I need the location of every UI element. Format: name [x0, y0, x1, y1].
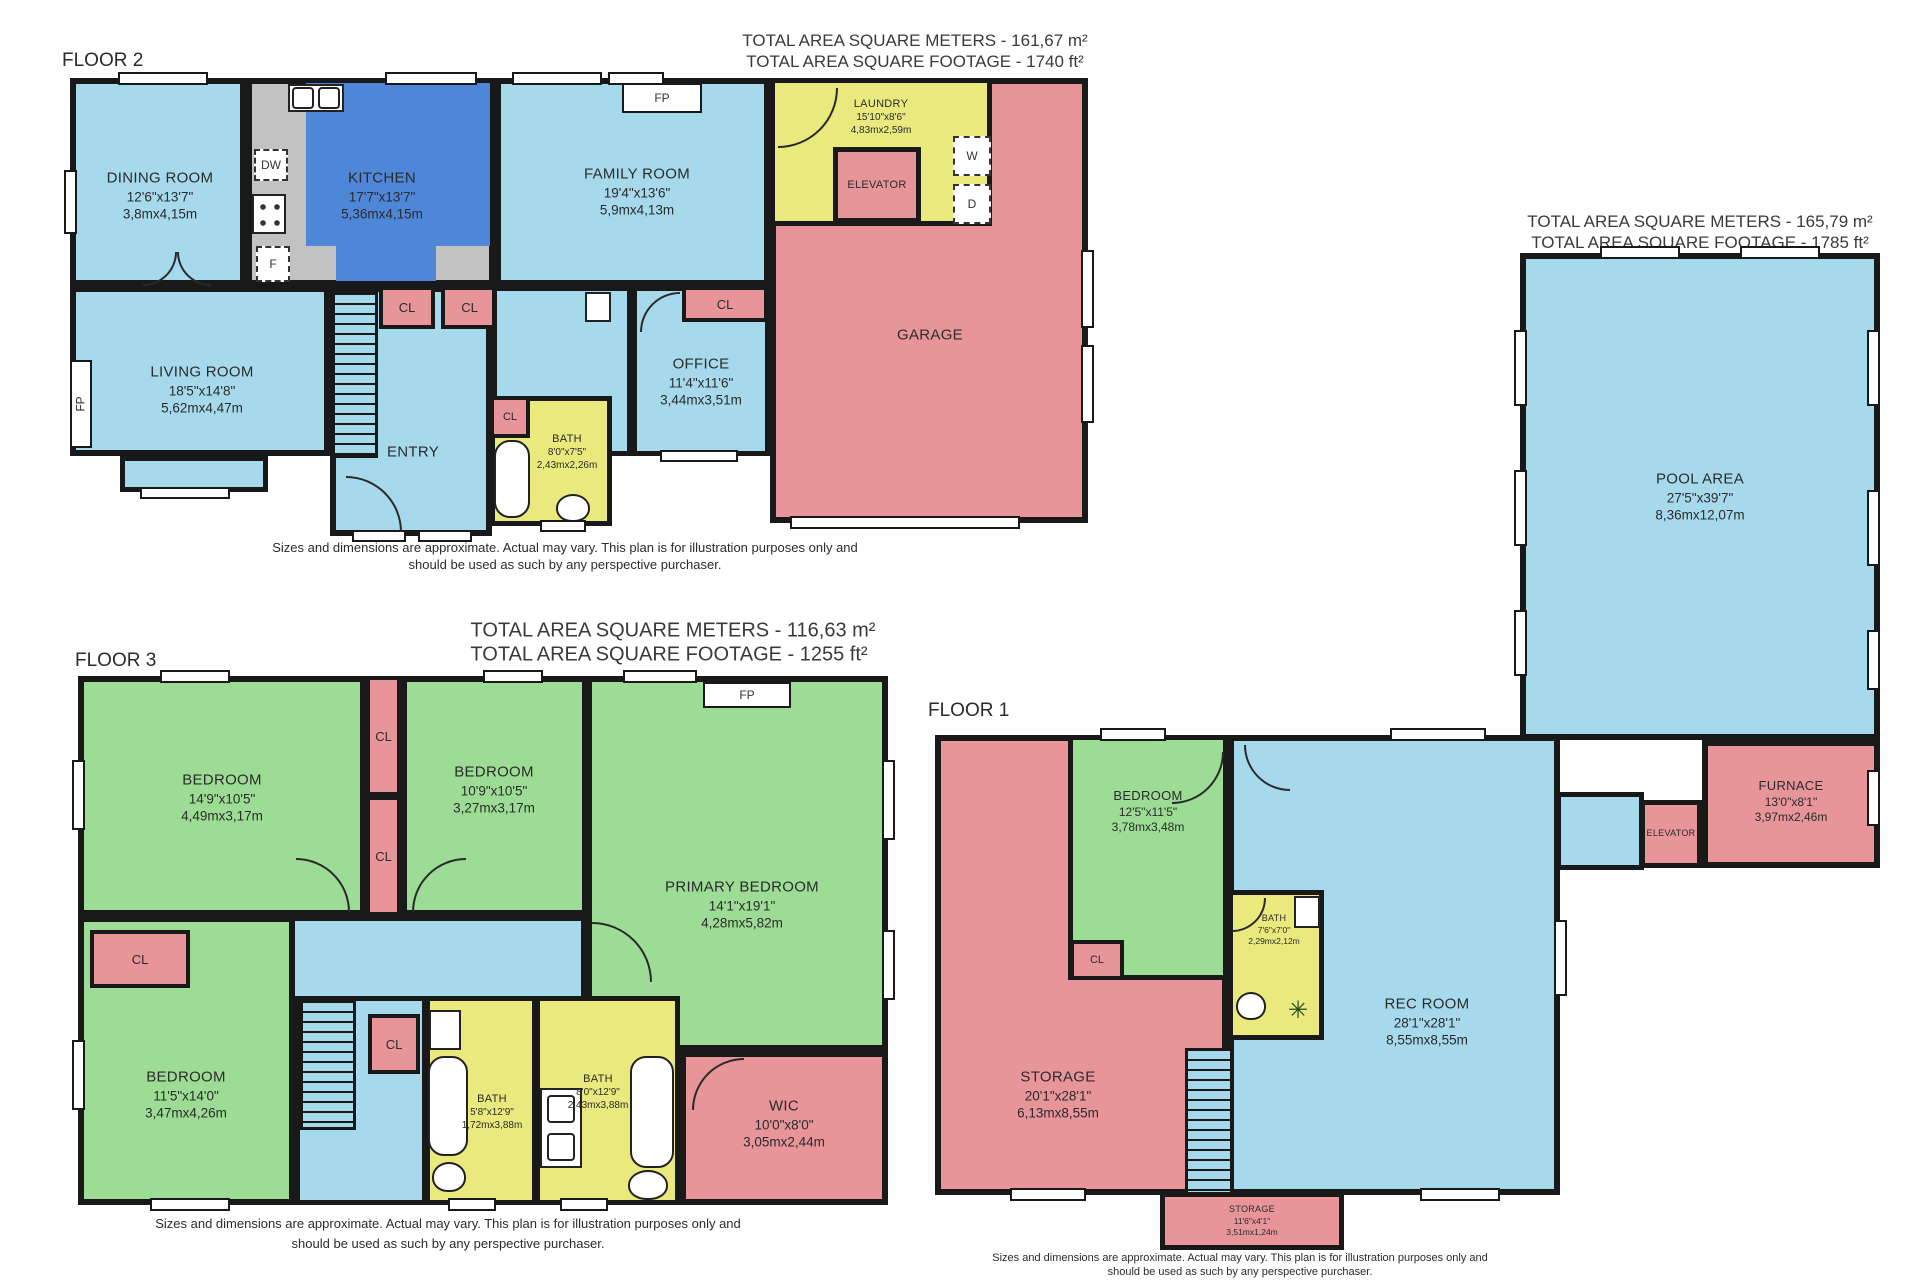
window: [1867, 630, 1880, 690]
floor1-total-meters: TOTAL AREA SQUARE METERS - 165,79 m²: [1527, 212, 1872, 232]
window: [1867, 330, 1880, 406]
garage-door: [790, 516, 1020, 529]
floor1-disclaimer-1: Sizes and dimensions are approximate. Ac…: [992, 1252, 1487, 1264]
window: [1600, 246, 1680, 259]
tub-bath-b-icon: [630, 1056, 674, 1168]
label-bath-a: BATH 5'8"x12'9" 1,72mx3,88m: [462, 1092, 523, 1132]
label-elevator-f1: ELEVATOR: [1647, 828, 1696, 840]
toilet-bath-a-icon: [432, 1162, 466, 1192]
window: [623, 670, 697, 683]
closet-f2-b: CL: [441, 286, 498, 329]
label-dining: DINING ROOM 12'6"x13'7" 3,8mx4,15m: [107, 169, 214, 224]
window: [882, 760, 895, 840]
closet-f2-a: CL: [379, 286, 435, 329]
label-bedroom-a: BEDROOM 14'9"x10'5" 4,49mx3,17m: [181, 771, 263, 826]
floor2-disclaimer-1: Sizes and dimensions are approximate. Ac…: [272, 540, 858, 555]
label-bath-f2: BATH 8'0"x7'5" 2,43mx2,26m: [537, 432, 598, 472]
tub-f2-icon: [494, 440, 530, 518]
closet-f3-left: CL: [90, 930, 190, 988]
stairs-floor1: [1185, 1048, 1233, 1195]
closet-f1: CL: [1070, 940, 1124, 980]
window: [1514, 330, 1527, 406]
window: [1867, 770, 1880, 826]
label-bedroom-f1: BEDROOM 12'5"x11'5" 3,78mx3,48m: [1112, 788, 1185, 836]
label-laundry: LAUNDRY 15'10"x8'6" 4,83mx2,59m: [851, 97, 912, 137]
closet-f2-bath: CL: [490, 396, 530, 438]
window: [1514, 610, 1527, 676]
floor2-disclaimer-2: should be used as such by any perspectiv…: [409, 557, 722, 572]
floor3-total-meters: TOTAL AREA SQUARE METERS - 116,63 m²: [471, 620, 876, 643]
label-furnace: FURNACE 13'0"x8'1" 3,97mx2,46m: [1755, 778, 1828, 826]
window: [560, 1198, 608, 1211]
label-pool-area: POOL AREA 27'5"x39'7" 8,36mx12,07m: [1655, 470, 1744, 525]
label-bath-f1: BATH 7'6"x7'0" 2,29mx2,12m: [1248, 913, 1300, 947]
label-bath-b: BATH 8'0"x12'9" 2,43mx3,88m: [568, 1072, 629, 1112]
closet-f3-mid: CL: [368, 1014, 420, 1074]
fridge-icon: F: [256, 246, 290, 282]
fireplace-family-icon: FP: [622, 83, 702, 113]
label-entry: ENTRY: [387, 442, 439, 462]
dishwasher-icon: DW: [254, 149, 288, 181]
window: [512, 72, 602, 85]
label-primary-bedroom: PRIMARY BEDROOM 14'1"x19'1" 4,28mx5,82m: [665, 878, 819, 933]
label-living: LIVING ROOM 18'5"x14'8" 5,62mx4,47m: [150, 363, 253, 418]
plant-icon: ✳: [1288, 996, 1308, 1025]
floor3-total-footage: TOTAL AREA SQUARE FOOTAGE - 1255 ft²: [470, 644, 867, 667]
fireplace-primary-icon: FP: [703, 682, 791, 708]
closet-f2-office: CL: [682, 286, 768, 322]
label-garage: GARAGE: [897, 325, 963, 345]
window: [1740, 246, 1820, 259]
floor2-total-meters: TOTAL AREA SQUARE METERS - 161,67 m²: [742, 31, 1087, 51]
window: [1390, 728, 1486, 741]
stairs-floor2: [332, 292, 378, 458]
dryer-icon: D: [953, 184, 991, 224]
label-wic: WIC 10'0"x8'0" 3,05mx2,44m: [743, 1097, 825, 1152]
window: [140, 487, 230, 499]
hall-sink-icon: [585, 292, 611, 322]
window: [608, 72, 664, 85]
floor2-total-footage: TOTAL AREA SQUARE FOOTAGE - 1740 ft²: [746, 52, 1084, 72]
window: [160, 670, 230, 683]
window: [540, 520, 586, 532]
window: [150, 1198, 230, 1211]
range-icon: [252, 194, 286, 234]
fireplace-living-icon: FP: [70, 360, 92, 448]
label-office: OFFICE 11'4"x11'6" 3,44mx3,51m: [660, 355, 742, 410]
label-storage-bottom: STORAGE 11'6"x4'1" 3,51mx1,24m: [1226, 1204, 1278, 1238]
floor3-disclaimer-2: should be used as such by any perspectiv…: [292, 1236, 605, 1251]
label-family: FAMILY ROOM 19'4"x13'6" 5,9mx4,13m: [584, 165, 690, 220]
floor3-disclaimer-1: Sizes and dimensions are approximate. Ac…: [155, 1216, 741, 1231]
kitchen-floor-2: [336, 246, 436, 281]
label-elevator-f2: ELEVATOR: [847, 178, 906, 192]
toilet-bath-b-icon: [628, 1170, 668, 1200]
closet-f3-b: CL: [366, 796, 401, 916]
window: [1420, 1188, 1500, 1201]
window: [72, 760, 85, 830]
sink-bath-a-icon: [429, 1010, 461, 1050]
window: [118, 72, 208, 85]
closet-f3-a: CL: [366, 676, 401, 796]
floor2-title: FLOOR 2: [62, 50, 143, 72]
window: [1081, 250, 1094, 328]
window: [882, 930, 895, 1000]
window: [1010, 1188, 1086, 1201]
floor1-disclaimer-2: should be used as such by any perspectiv…: [1108, 1266, 1373, 1278]
window: [1100, 728, 1166, 741]
washer-icon: W: [953, 136, 991, 176]
window: [72, 1040, 85, 1110]
window: [448, 1198, 496, 1211]
kitchen-sink-icon: [288, 84, 344, 112]
toilet-f1-icon: [1236, 992, 1266, 1020]
window: [483, 670, 543, 683]
window: [64, 170, 77, 234]
toilet-f2-icon: [556, 494, 590, 522]
label-bedroom-c: BEDROOM 11'5"x14'0" 3,47mx4,26m: [145, 1068, 227, 1123]
label-rec-room: REC ROOM 28'1"x28'1" 8,55mx8,55m: [1385, 995, 1470, 1050]
window: [1867, 490, 1880, 566]
floor1-title: FLOOR 1: [928, 700, 1009, 722]
window: [1081, 345, 1094, 423]
label-bedroom-b: BEDROOM 10'9"x10'5" 3,27mx3,17m: [453, 763, 535, 818]
floor3-title: FLOOR 3: [75, 650, 156, 672]
window: [1514, 470, 1527, 546]
label-storage-f1: STORAGE 20'1"x28'1" 6,13mx8,55m: [1017, 1068, 1099, 1123]
hallway-floor3: [290, 916, 586, 1002]
window: [1554, 920, 1567, 996]
stairs-floor3: [300, 1000, 356, 1130]
room-primary-bedroom: [586, 676, 888, 1051]
label-kitchen: KITCHEN 17'7"x13'7" 5,36mx4,15m: [341, 169, 423, 224]
vestibule-f1: [1556, 792, 1644, 870]
window: [660, 450, 738, 462]
floorplan-page: TOTAL AREA SQUARE METERS - 161,67 m² TOT…: [0, 0, 1920, 1280]
window: [385, 72, 477, 85]
